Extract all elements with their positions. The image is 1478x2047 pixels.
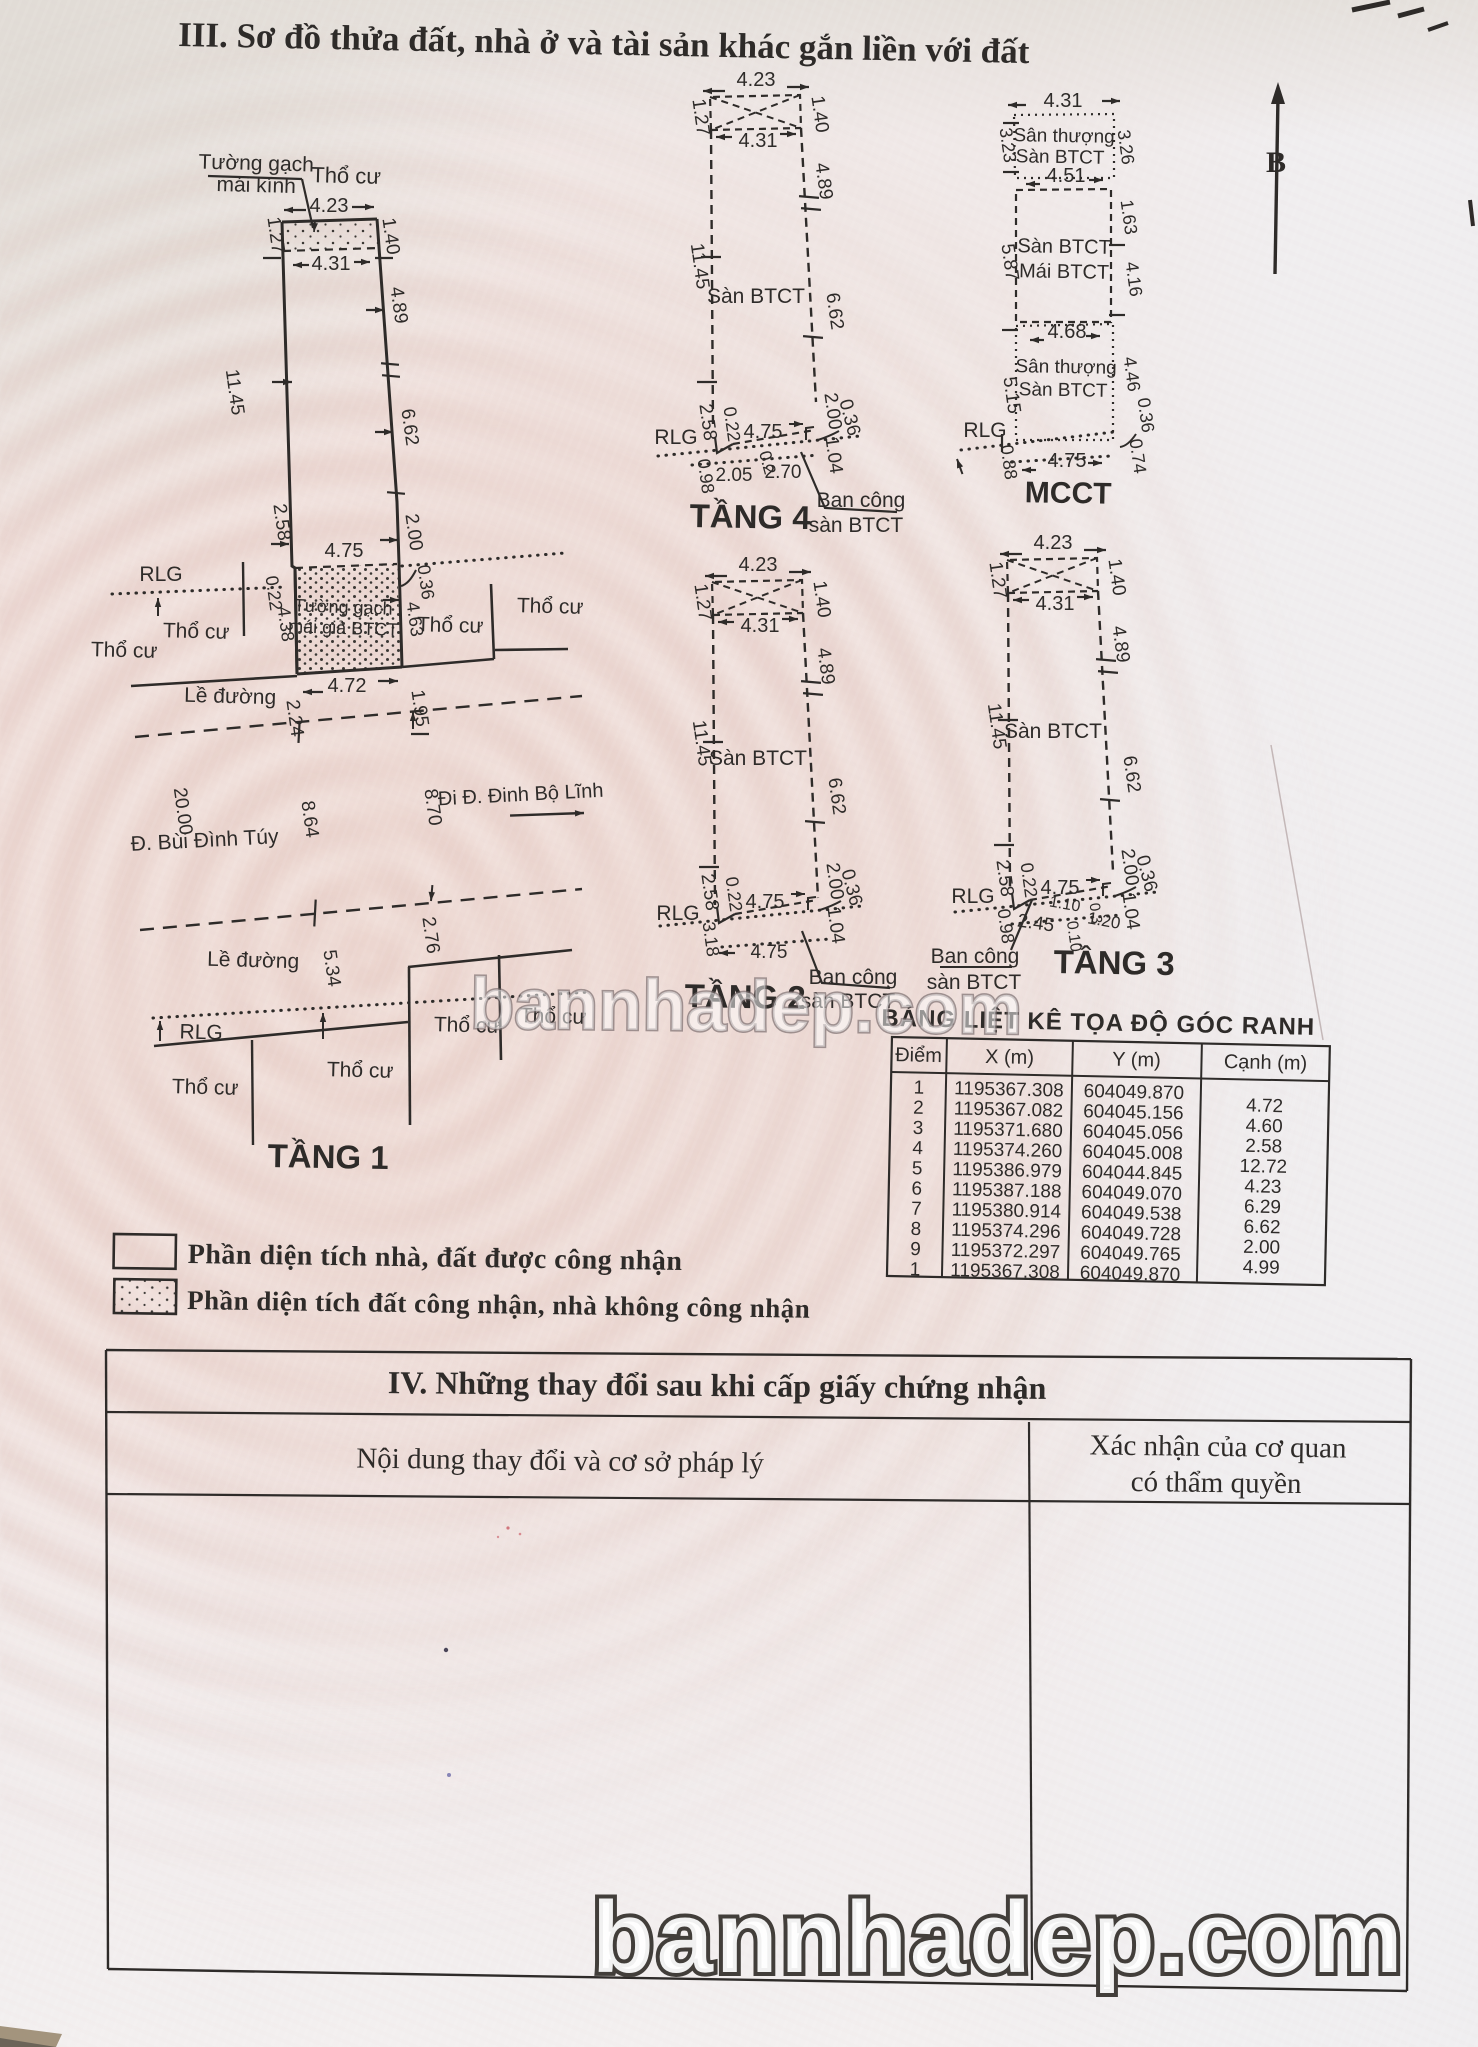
svg-text:Sân thượng: Sân thượng — [1013, 125, 1115, 148]
svg-text:Sàn BTCT: Sàn BTCT — [1004, 720, 1102, 743]
svg-text:0.36: 0.36 — [1134, 396, 1159, 433]
svg-text:Phần diện tích đất công nhận,: Phần diện tích đất công nhận, nhà không … — [187, 1285, 811, 1324]
svg-text:4.31: 4.31 — [741, 615, 780, 637]
svg-text:Phần diện tích nhà, đất được c: Phần diện tích nhà, đất được công nhận — [188, 1239, 683, 1277]
svg-text:11.45: 11.45 — [686, 242, 713, 291]
svg-text:5.15: 5.15 — [998, 375, 1024, 415]
svg-text:2.76: 2.76 — [417, 915, 443, 955]
svg-text:2.24: 2.24 — [281, 698, 307, 738]
svg-text:4.75: 4.75 — [1048, 450, 1087, 472]
svg-text:RLG: RLG — [951, 885, 994, 908]
svg-text:0.88: 0.88 — [997, 443, 1022, 480]
svg-text:IV. Những thay đổi sau khi cấp: IV. Những thay đổi sau khi cấp giấy chứn… — [388, 1364, 1047, 1406]
svg-text:1195367.308: 1195367.308 — [950, 1260, 1060, 1283]
svg-text:6: 6 — [911, 1178, 922, 1199]
svg-text:Sàn BTCT: Sàn BTCT — [1019, 379, 1108, 402]
svg-text:4.72: 4.72 — [1246, 1095, 1283, 1117]
svg-text:4.75: 4.75 — [751, 942, 788, 963]
svg-text:5.34: 5.34 — [318, 948, 344, 988]
svg-text:6.62: 6.62 — [396, 407, 422, 447]
svg-text:Thổ cư: Thổ cư — [327, 1058, 394, 1083]
svg-text:1.27: 1.27 — [984, 560, 1010, 600]
svg-text:TẦNG 1: TẦNG 1 — [267, 1137, 389, 1176]
svg-text:2.58: 2.58 — [268, 502, 294, 542]
svg-text:4.16: 4.16 — [1122, 260, 1147, 297]
svg-text:1.27: 1.27 — [262, 215, 288, 255]
svg-text:2.00: 2.00 — [400, 512, 426, 552]
svg-text:4.89: 4.89 — [385, 285, 411, 325]
svg-text:bannhadep.com: bannhadep.com — [470, 964, 1023, 1050]
svg-text:Sàn BTCT: Sàn BTCT — [709, 747, 807, 770]
svg-text:Thổ cư: Thổ cư — [517, 594, 584, 619]
svg-text:Lề đường: Lề đường — [207, 948, 300, 973]
svg-text:4.51: 4.51 — [1047, 165, 1086, 187]
svg-text:6.29: 6.29 — [1244, 1196, 1281, 1218]
svg-text:Thổ cư: Thổ cư — [311, 162, 382, 189]
svg-text:1.63: 1.63 — [1117, 198, 1142, 235]
svg-text:2: 2 — [913, 1098, 924, 1119]
svg-text:Ban công: Ban công — [817, 489, 906, 512]
svg-text:8.70: 8.70 — [419, 787, 445, 827]
svg-text:1.40: 1.40 — [377, 216, 403, 256]
svg-text:Sân thượng: Sân thượng — [1015, 356, 1117, 379]
svg-text:4.23: 4.23 — [310, 195, 349, 217]
svg-text:4.31: 4.31 — [1036, 593, 1075, 615]
svg-text:RLG: RLG — [963, 419, 1006, 442]
svg-text:2.05: 2.05 — [716, 465, 753, 486]
svg-text:12.72: 12.72 — [1239, 1156, 1287, 1178]
svg-text:4.23: 4.23 — [1034, 532, 1073, 554]
svg-text:2.70: 2.70 — [765, 462, 802, 483]
svg-text:4.72: 4.72 — [328, 675, 367, 697]
svg-text:1.04: 1.04 — [820, 435, 846, 475]
svg-text:4.89: 4.89 — [1107, 624, 1133, 664]
svg-text:TẦNG 4: TẦNG 4 — [689, 497, 811, 536]
svg-text:Tường gạch: Tường gạch — [198, 150, 314, 176]
svg-text:8.64: 8.64 — [296, 799, 322, 839]
svg-text:Thổ cư: Thổ cư — [417, 613, 484, 638]
svg-text:2.58: 2.58 — [991, 858, 1017, 898]
svg-text:7: 7 — [911, 1199, 922, 1220]
svg-text:11.45: 11.45 — [983, 702, 1010, 751]
svg-text:1.27: 1.27 — [687, 97, 713, 137]
svg-text:1.20: 1.20 — [1086, 908, 1122, 932]
svg-text:4.23: 4.23 — [739, 554, 778, 576]
svg-text:4.99: 4.99 — [1242, 1257, 1279, 1279]
svg-text:Nội dung thay đổi và cơ sở phá: Nội dung thay đổi và cơ sở pháp lý — [356, 1443, 764, 1480]
svg-text:Thổ cư: Thổ cư — [163, 619, 230, 644]
svg-text:20.00: 20.00 — [169, 786, 196, 836]
svg-text:1: 1 — [913, 1077, 924, 1098]
svg-text:sàn BTCT: sàn BTCT — [809, 514, 904, 537]
svg-text:1.40: 1.40 — [806, 94, 832, 134]
svg-text:4.31: 4.31 — [1044, 90, 1083, 112]
svg-text:bannhadep.com: bannhadep.com — [592, 1882, 1405, 1994]
svg-text:5.87: 5.87 — [996, 242, 1022, 282]
svg-text:6.62: 6.62 — [1118, 754, 1144, 794]
svg-text:4.46: 4.46 — [1120, 355, 1145, 392]
svg-text:RLG: RLG — [139, 563, 182, 586]
svg-text:Mái BTCT: Mái BTCT — [1019, 260, 1109, 284]
svg-text:Thổ cư: Thổ cư — [172, 1075, 239, 1100]
svg-text:có thẩm quyền: có thẩm quyền — [1131, 1466, 1303, 1500]
svg-text:5: 5 — [912, 1158, 923, 1179]
svg-text:6.62: 6.62 — [1243, 1217, 1280, 1239]
svg-text:2.58: 2.58 — [694, 402, 720, 442]
svg-text:Xác nhận của cơ quan: Xác nhận của cơ quan — [1089, 1429, 1347, 1464]
svg-text:4.31: 4.31 — [739, 130, 778, 152]
svg-text:III. Sơ đồ thửa đất, nhà ở và: III. Sơ đồ thửa đất, nhà ở và tài sản kh… — [178, 15, 1030, 71]
svg-text:MCCT: MCCT — [1025, 476, 1112, 511]
svg-text:3.23: 3.23 — [996, 126, 1021, 163]
svg-text:6.62: 6.62 — [821, 291, 847, 331]
svg-text:3.26: 3.26 — [1114, 128, 1139, 165]
svg-text:4.31: 4.31 — [312, 253, 351, 275]
svg-text:Sàn BTCT: Sàn BTCT — [707, 285, 805, 308]
svg-text:TẦNG 3: TẦNG 3 — [1053, 943, 1175, 982]
svg-text:1.95: 1.95 — [406, 688, 432, 728]
svg-text:604049.870: 604049.870 — [1080, 1263, 1181, 1286]
svg-text:Đi Đ. Đinh Bộ Lĩnh: Đi Đ. Đinh Bộ Lĩnh — [437, 780, 604, 811]
svg-text:1.04: 1.04 — [1117, 891, 1143, 931]
svg-text:1.40: 1.40 — [808, 579, 834, 619]
svg-text:Y (m): Y (m) — [1112, 1049, 1161, 1072]
svg-text:6.62: 6.62 — [823, 776, 849, 816]
svg-text:0.22: 0.22 — [720, 405, 745, 442]
svg-text:1.27: 1.27 — [689, 582, 715, 622]
svg-text:0.36: 0.36 — [414, 563, 439, 600]
svg-text:4.38: 4.38 — [274, 605, 299, 642]
svg-text:2.58: 2.58 — [1245, 1136, 1282, 1158]
svg-text:Cạnh (m): Cạnh (m) — [1224, 1051, 1308, 1075]
svg-text:0.22: 0.22 — [722, 875, 747, 912]
svg-text:4.89: 4.89 — [812, 646, 838, 686]
svg-text:Tường gạch: Tường gạch — [293, 595, 393, 618]
svg-text:RLG: RLG — [654, 426, 697, 449]
svg-text:11.45: 11.45 — [221, 368, 248, 417]
svg-text:4.89: 4.89 — [810, 161, 836, 201]
svg-text:9: 9 — [910, 1239, 921, 1260]
svg-text:8: 8 — [910, 1219, 921, 1240]
svg-text:4.23: 4.23 — [1244, 1176, 1281, 1198]
svg-text:B: B — [1266, 146, 1286, 179]
svg-text:Thổ cư: Thổ cư — [91, 638, 158, 663]
svg-text:2.00: 2.00 — [1243, 1237, 1280, 1259]
svg-text:3: 3 — [913, 1118, 924, 1139]
svg-text:4: 4 — [912, 1138, 923, 1159]
svg-text:4.60: 4.60 — [1245, 1116, 1282, 1138]
svg-text:Đ. Bùi Đình Túy: Đ. Bùi Đình Túy — [130, 825, 279, 856]
svg-text:2.58: 2.58 — [696, 872, 722, 912]
svg-text:1: 1 — [910, 1259, 921, 1280]
svg-text:4.23: 4.23 — [737, 69, 776, 91]
svg-text:Sàn BTCT: Sàn BTCT — [1017, 235, 1111, 259]
svg-text:mái giả BTCT: mái giả BTCT — [288, 616, 399, 640]
svg-text:1.40: 1.40 — [1103, 557, 1129, 597]
svg-text:Lề đường: Lề đường — [184, 684, 277, 709]
svg-text:Ban công: Ban công — [931, 945, 1020, 968]
svg-text:11.45: 11.45 — [688, 719, 715, 768]
svg-text:4.75: 4.75 — [325, 540, 364, 562]
svg-text:0.22: 0.22 — [1017, 861, 1042, 898]
